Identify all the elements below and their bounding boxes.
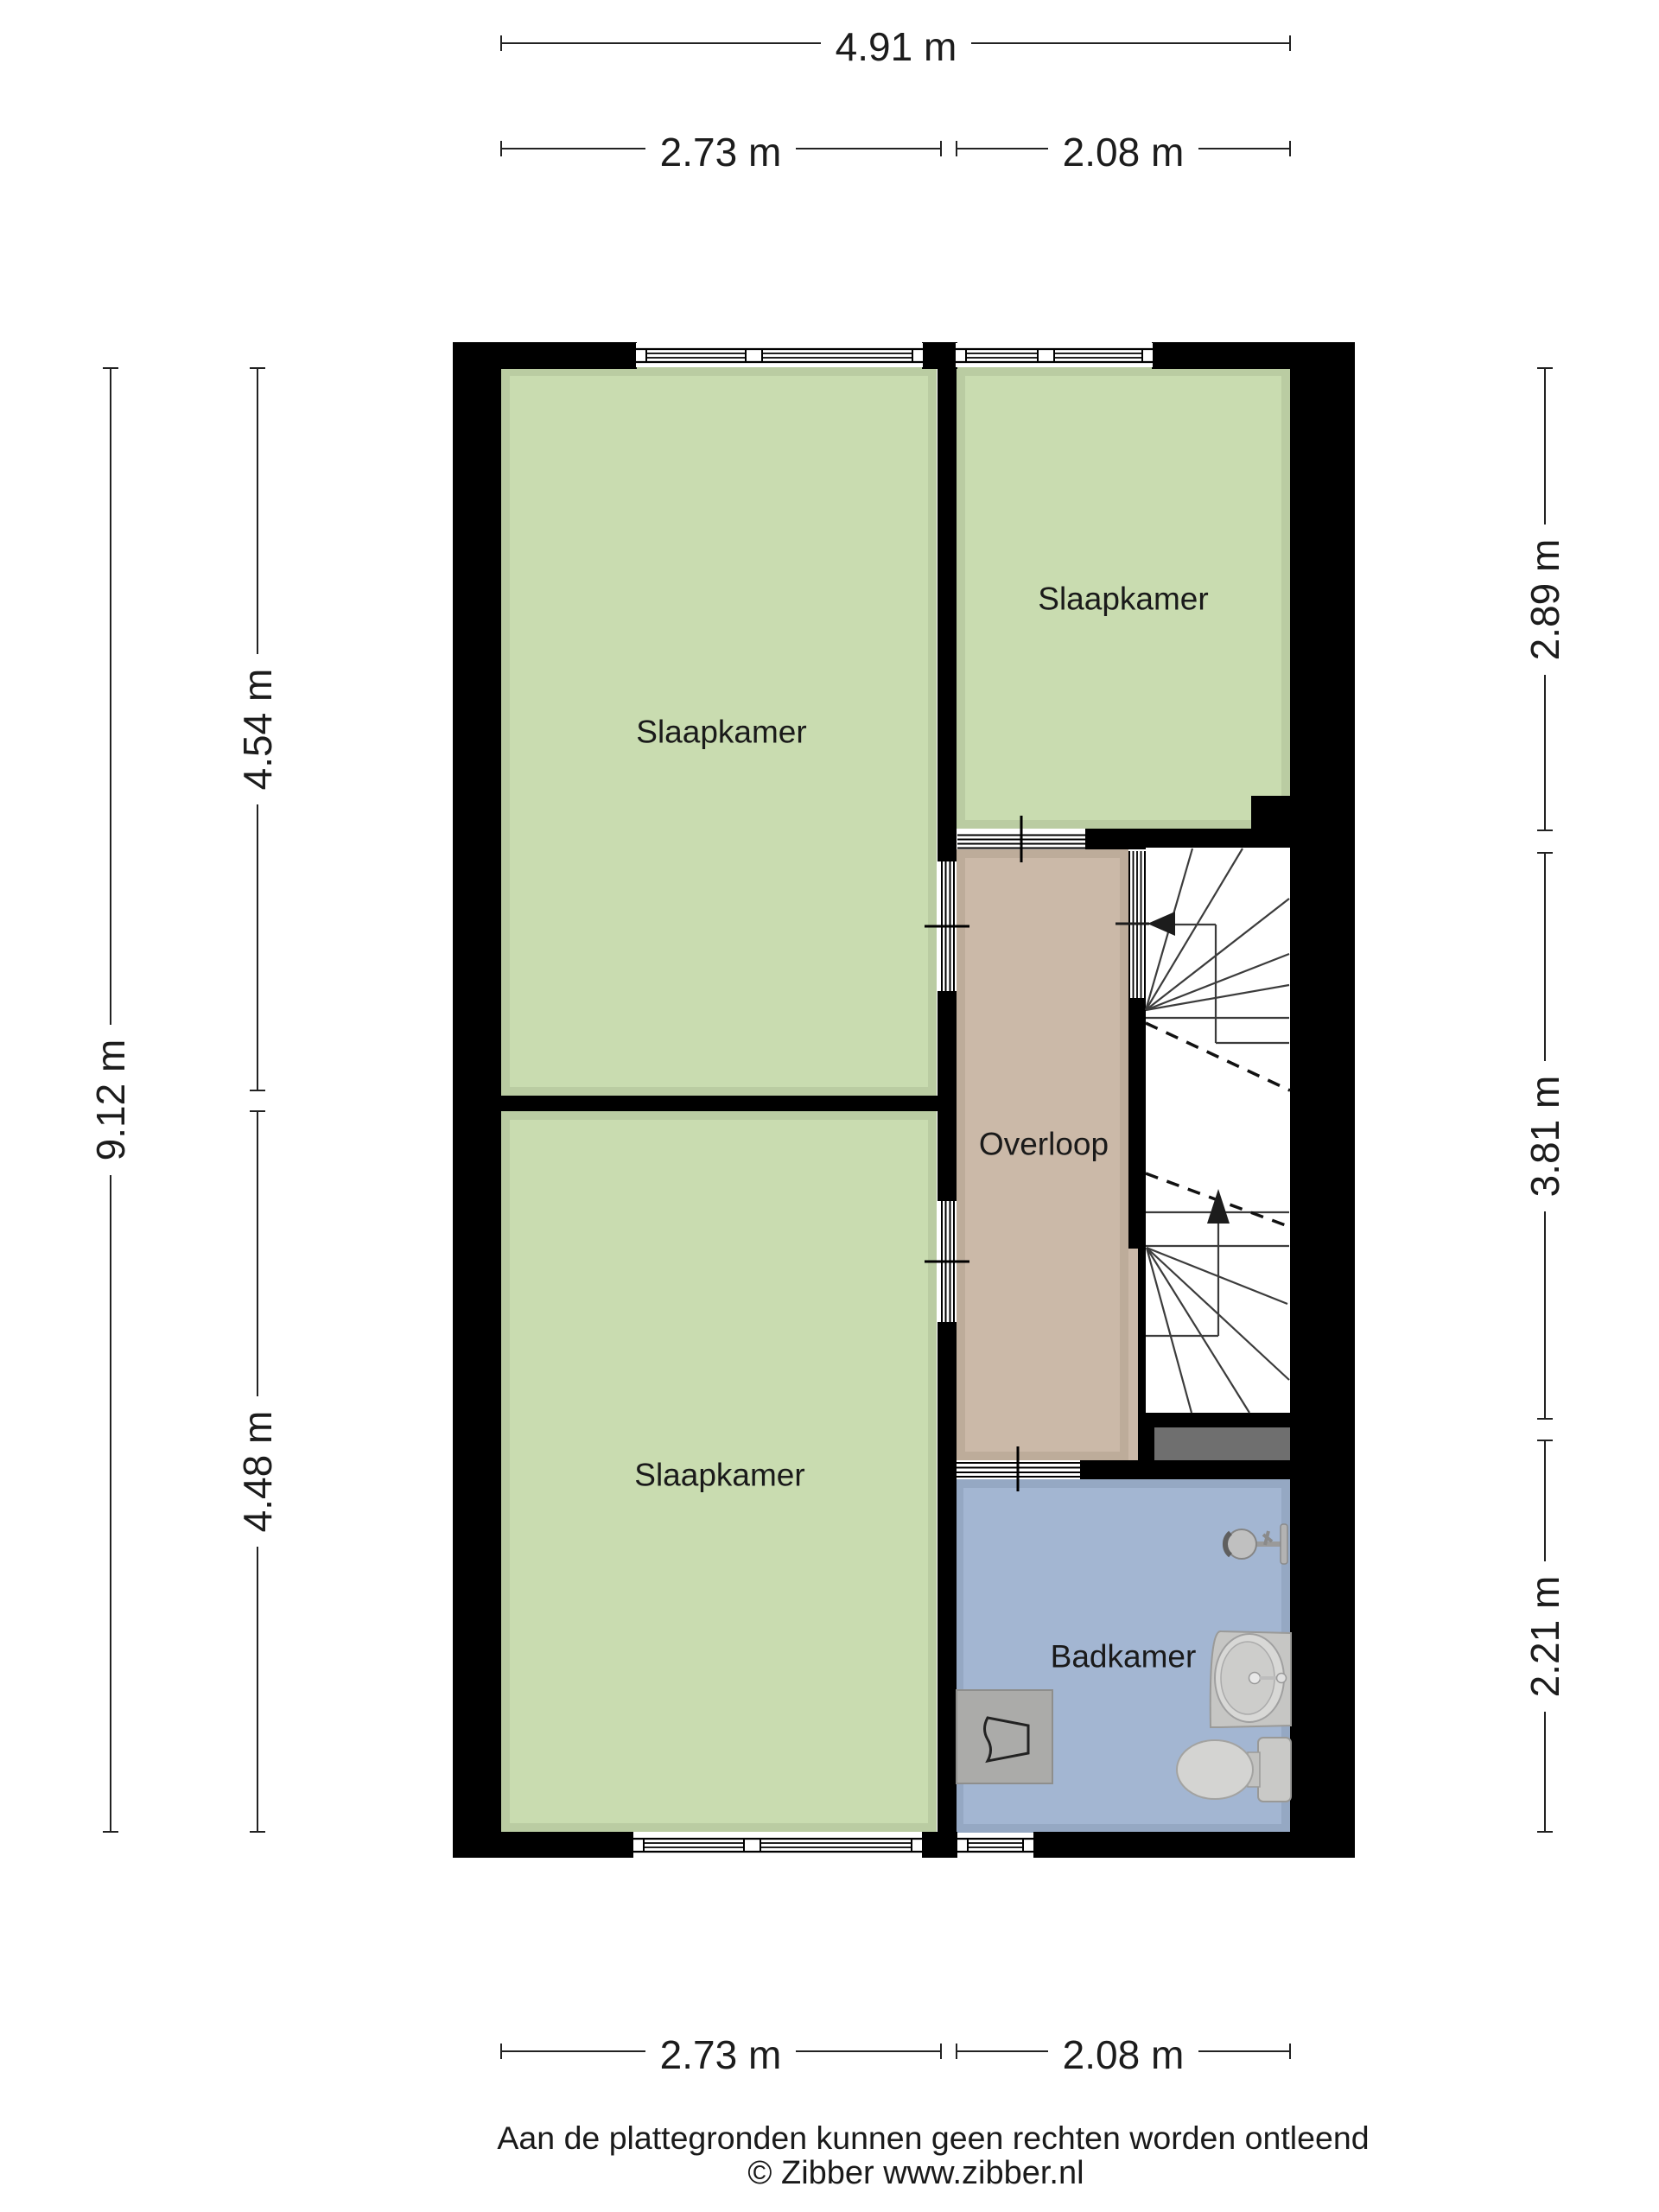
svg-text:4.48 m: 4.48 m [235,1411,280,1533]
svg-text:Slaapkamer: Slaapkamer [1038,582,1208,617]
svg-text:2.21 m: 2.21 m [1522,1576,1567,1698]
svg-text:Badkamer: Badkamer [1051,1639,1197,1675]
svg-text:9.12 m: 9.12 m [88,1039,133,1161]
svg-text:4.54 m: 4.54 m [235,669,280,791]
svg-text:2.73 m: 2.73 m [660,130,782,175]
svg-text:2.89 m: 2.89 m [1522,539,1567,661]
svg-text:Slaapkamer: Slaapkamer [636,715,806,750]
svg-text:3.81 m: 3.81 m [1522,1076,1567,1198]
svg-text:Overloop: Overloop [979,1127,1109,1162]
svg-text:© Zibber www.zibber.nl: © Zibber www.zibber.nl [747,2155,1084,2191]
svg-text:2.73 m: 2.73 m [660,2032,782,2077]
svg-text:Aan de plattegronden kunnen ge: Aan de plattegronden kunnen geen rechten… [497,2120,1369,2156]
svg-text:2.08 m: 2.08 m [1063,130,1185,175]
svg-text:4.91 m: 4.91 m [836,24,957,69]
svg-text:2.08 m: 2.08 m [1063,2032,1185,2077]
svg-text:Slaapkamer: Slaapkamer [634,1458,804,1493]
